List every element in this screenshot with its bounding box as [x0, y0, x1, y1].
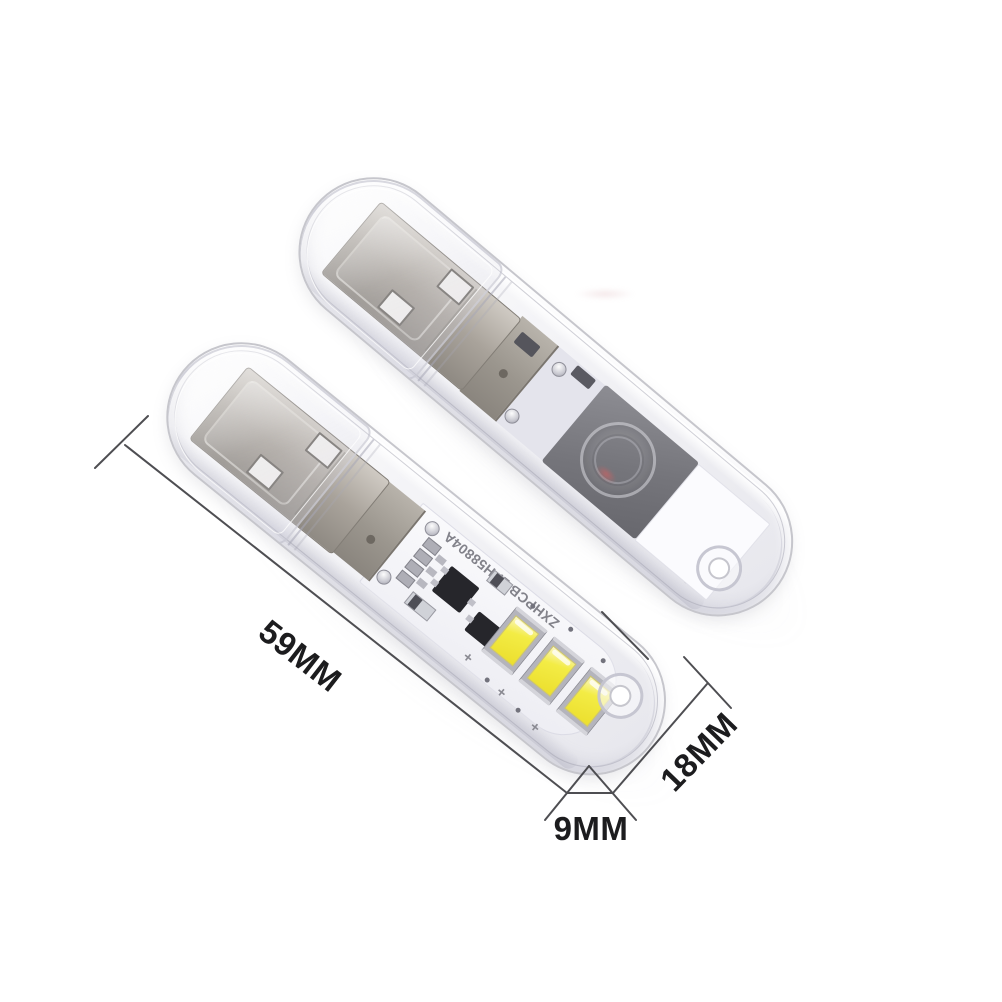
dimension-tick-18mm	[684, 657, 731, 708]
thickness-dimension-label: 9MM	[554, 810, 629, 848]
product-photo: ZXHPCB 2PH58804A	[0, 0, 1002, 1002]
dimension-tick-59mm	[95, 416, 148, 468]
dimension-extension-18mm	[602, 612, 648, 659]
dimension-line-59mm	[125, 445, 567, 793]
dimension-lines	[0, 0, 1002, 1002]
